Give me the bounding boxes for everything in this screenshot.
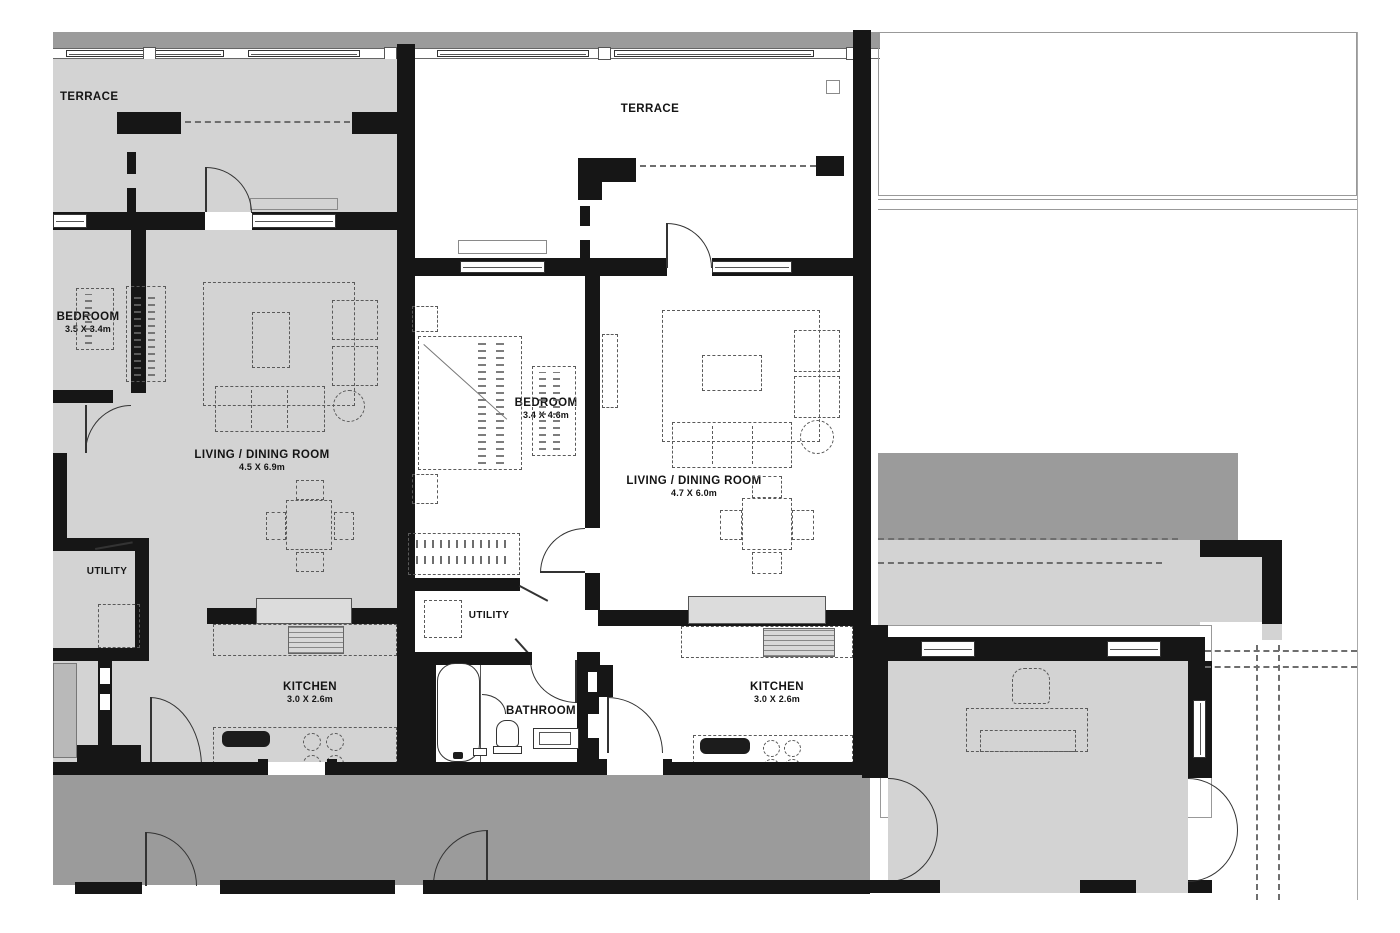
wall (75, 882, 142, 894)
setback-dashed-line (1278, 645, 1280, 900)
wall (1080, 880, 1136, 893)
burner (326, 733, 344, 751)
burner (303, 733, 321, 751)
window (712, 261, 792, 273)
boundary-line (878, 209, 1357, 210)
room-label-utility-left: UTILITY (57, 566, 157, 579)
wall (127, 188, 136, 212)
room-name: BATHROOM (506, 705, 576, 717)
room-label-terrace-center: TERRACE (570, 102, 730, 116)
balcony-dashed-edge (878, 562, 1162, 564)
wall (423, 880, 870, 894)
wall (53, 648, 149, 661)
appliance-furniture (424, 600, 462, 638)
neighbour-terrace-floor (1200, 557, 1262, 622)
wall (352, 112, 397, 134)
door-arc (540, 528, 585, 573)
wardrobe-ticks (148, 292, 155, 376)
room-name: LIVING / DINING ROOM (626, 475, 761, 487)
terrace-dashed-edge (185, 121, 350, 123)
wall (127, 152, 136, 174)
wall (862, 880, 888, 893)
kitchen-sink (288, 626, 344, 654)
setback-dashed-line (1205, 666, 1357, 668)
neighbour-terrace-floor (878, 540, 1200, 625)
coffee-table-furniture (702, 355, 762, 391)
room-label-kitchen-left: KITCHEN 3.0 X 2.6m (230, 680, 390, 706)
setback-dashed-line (1256, 645, 1258, 900)
coffee-table-furniture (252, 312, 290, 368)
nightstand-furniture (412, 306, 438, 332)
bathroom-accessory (473, 748, 487, 756)
cooktop (222, 731, 270, 747)
wall (597, 665, 613, 697)
mattress-ticks (478, 342, 486, 464)
dining-chair-furniture (752, 476, 782, 498)
railing-post (598, 47, 611, 60)
wall (220, 880, 395, 894)
wall (1188, 880, 1212, 893)
sofa-cushion-line (752, 426, 753, 464)
double-door-arc (1188, 778, 1238, 830)
dining-table-furniture (286, 500, 332, 550)
window-sill (250, 198, 338, 210)
boundary-line (1357, 32, 1358, 900)
wall (862, 625, 888, 778)
wall (816, 156, 844, 176)
room-dims: 3.0 X 2.6m (697, 694, 857, 705)
wardrobe-ticks (553, 372, 560, 450)
wall (888, 880, 940, 893)
boundary-line (878, 199, 1357, 200)
cabinet-ticks (85, 294, 92, 344)
window (248, 50, 360, 57)
sofa-cushion-line (251, 390, 252, 428)
bathtub-faucet (453, 752, 463, 759)
room-label-bathroom: BATHROOM (461, 704, 621, 718)
bed-furniture (418, 336, 522, 470)
cabinet-furniture (76, 288, 114, 350)
window (460, 261, 545, 273)
square-symbol (826, 80, 840, 94)
appliance-furniture (98, 604, 140, 648)
window (1193, 700, 1206, 758)
wall (117, 112, 181, 134)
desk-furniture-inner (980, 730, 1076, 752)
room-dims: 3.0 X 2.6m (230, 694, 390, 705)
room-name: UTILITY (469, 610, 510, 621)
wall (585, 573, 600, 610)
toilet (496, 720, 519, 747)
terrace-dashed-edge (640, 165, 816, 167)
wall-niche (100, 694, 110, 710)
floor-plan: TERRACE BEDROOM 3.5 X 3.4m LIVING / DINI… (0, 0, 1400, 933)
cooktop (700, 738, 750, 754)
wall (415, 578, 520, 591)
room-name: TERRACE (621, 103, 679, 115)
room-label-kitchen-center: KITCHEN 3.0 X 2.6m (697, 680, 857, 706)
armchair-furniture (332, 300, 378, 340)
wall (578, 158, 636, 182)
dining-chair-furniture (752, 552, 782, 574)
sofa-cushion-line (287, 390, 288, 428)
kitchen-counter-block (256, 598, 352, 624)
storage-ticks (416, 540, 508, 548)
burner (784, 740, 801, 757)
door-arc (667, 223, 712, 268)
wall (53, 453, 67, 541)
window (437, 50, 589, 57)
mattress-ticks (496, 342, 504, 464)
neighbour-terrace-floor (1262, 624, 1282, 640)
dining-chair-furniture (266, 512, 286, 540)
wall (580, 206, 590, 226)
room-name: KITCHEN (283, 681, 337, 693)
room-name: TERRACE (60, 91, 118, 103)
wall-niche (100, 668, 110, 684)
wardrobe-ticks (539, 372, 546, 450)
room-name: KITCHEN (750, 681, 804, 693)
sofa-furniture (672, 422, 792, 468)
side-table-furniture (333, 390, 365, 422)
dining-chair-furniture (334, 512, 354, 540)
wardrobe-furniture (126, 286, 166, 382)
room-name: LIVING / DINING ROOM (194, 449, 329, 461)
room-label-living-left: LIVING / DINING ROOM 4.5 X 6.9m (182, 448, 342, 474)
window (1107, 641, 1161, 657)
door-opening (205, 212, 252, 230)
vanity-basin (539, 732, 571, 745)
toilet-tank (493, 746, 522, 754)
dining-table-furniture (742, 498, 792, 550)
dining-chair-furniture (720, 510, 742, 540)
wall (578, 182, 602, 200)
wall (580, 240, 590, 258)
window (614, 50, 814, 57)
dining-chair-furniture (296, 480, 324, 500)
balcony-edge-band (53, 32, 880, 48)
dining-chair-furniture (296, 552, 324, 572)
room-label-terrace-left: TERRACE (60, 90, 118, 104)
dining-chair-furniture (792, 510, 814, 540)
burner (763, 740, 780, 757)
sofa-cushion-line (712, 426, 713, 464)
kitchen-sink (763, 628, 835, 657)
storage-ticks (416, 556, 508, 564)
setback-dashed-line (1205, 650, 1357, 652)
wall (577, 652, 600, 665)
door-leaf-angled (519, 585, 548, 602)
desk-chair-furniture (1012, 668, 1050, 704)
kitchen-counter-block (688, 596, 826, 624)
side-table-furniture (800, 420, 834, 454)
room-name: UTILITY (87, 566, 128, 577)
wall (1262, 540, 1282, 624)
wall (400, 652, 436, 775)
armchair-furniture (794, 330, 840, 372)
duct-shaft (53, 663, 77, 758)
window (53, 214, 87, 228)
adjacent-parcel-outline (878, 32, 1357, 196)
wall (53, 390, 113, 403)
armchair-furniture (332, 346, 378, 386)
neighbour-balcony (878, 453, 1238, 540)
window-sill (458, 240, 547, 254)
sofa-furniture (215, 386, 325, 432)
window (921, 641, 975, 657)
room-dims: 4.5 X 6.9m (182, 462, 342, 473)
nightstand-furniture (412, 474, 438, 504)
dresser-furniture (602, 334, 618, 408)
armchair-furniture (794, 376, 840, 418)
window (252, 214, 336, 228)
room-label-living-center: LIVING / DINING ROOM 4.7 X 6.0m (614, 474, 774, 500)
door-arc (607, 697, 663, 753)
double-door-arc (1188, 830, 1238, 882)
wardrobe-ticks (134, 292, 141, 376)
door-arc (530, 660, 577, 703)
